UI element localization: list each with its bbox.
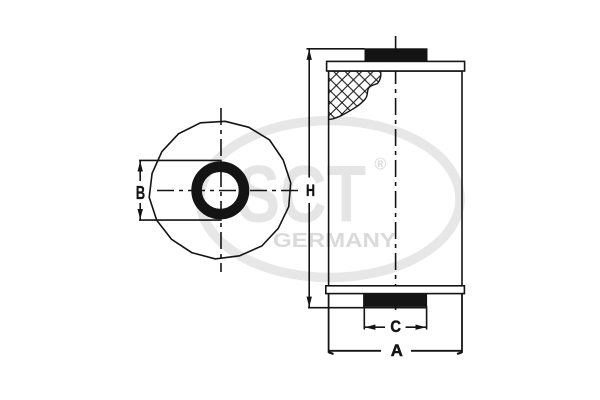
svg-text:GERMANY: GERMANY: [273, 229, 396, 252]
svg-text:®: ®: [374, 155, 386, 173]
svg-text:H: H: [306, 182, 315, 200]
svg-text:A: A: [391, 341, 403, 360]
svg-text:B: B: [136, 183, 145, 203]
svg-text:C: C: [390, 317, 401, 336]
svg-text:SCT: SCT: [237, 150, 366, 240]
